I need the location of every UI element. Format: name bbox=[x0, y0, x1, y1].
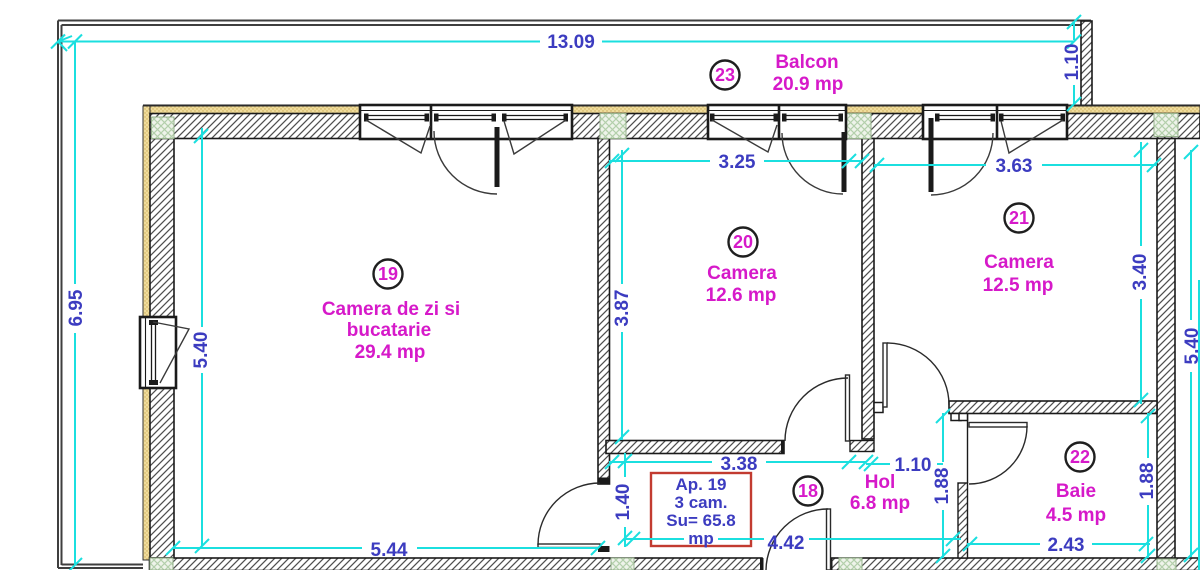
svg-text:29.4 mp: 29.4 mp bbox=[355, 342, 426, 363]
svg-text:23: 23 bbox=[715, 65, 735, 85]
svg-text:3 cam.: 3 cam. bbox=[675, 493, 728, 512]
svg-text:3.38: 3.38 bbox=[721, 454, 758, 475]
svg-text:Camera: Camera bbox=[984, 252, 1054, 273]
svg-text:20: 20 bbox=[733, 232, 753, 252]
svg-text:Hol: Hol bbox=[865, 472, 896, 493]
svg-text:12.6 mp: 12.6 mp bbox=[706, 285, 777, 306]
svg-text:13.09: 13.09 bbox=[547, 32, 595, 53]
svg-text:Ap. 19: Ap. 19 bbox=[675, 475, 726, 494]
svg-text:Baie: Baie bbox=[1056, 481, 1096, 502]
svg-text:12.5 mp: 12.5 mp bbox=[983, 275, 1054, 296]
svg-text:3.63: 3.63 bbox=[996, 156, 1033, 177]
svg-text:bucatarie: bucatarie bbox=[347, 320, 431, 341]
svg-text:22: 22 bbox=[1070, 447, 1090, 467]
svg-text:2.43: 2.43 bbox=[1048, 535, 1085, 556]
svg-text:6.95: 6.95 bbox=[66, 289, 87, 326]
svg-text:21: 21 bbox=[1009, 208, 1029, 228]
svg-text:5.40: 5.40 bbox=[1182, 328, 1200, 365]
svg-text:6.8 mp: 6.8 mp bbox=[850, 493, 910, 514]
svg-text:Balcon: Balcon bbox=[775, 52, 838, 73]
svg-text:18: 18 bbox=[798, 481, 818, 501]
svg-text:3.87: 3.87 bbox=[612, 290, 633, 327]
svg-text:1.88: 1.88 bbox=[932, 468, 953, 505]
svg-text:5.44: 5.44 bbox=[371, 540, 408, 561]
svg-text:mp: mp bbox=[688, 529, 714, 548]
svg-text:4.42: 4.42 bbox=[768, 533, 805, 554]
svg-text:1.10: 1.10 bbox=[1062, 44, 1083, 81]
svg-text:3.40: 3.40 bbox=[1130, 254, 1151, 291]
svg-text:Camera de zi si: Camera de zi si bbox=[322, 299, 460, 320]
svg-text:1.88: 1.88 bbox=[1137, 463, 1158, 500]
svg-text:4.5 mp: 4.5 mp bbox=[1046, 505, 1106, 526]
svg-text:19: 19 bbox=[378, 264, 398, 284]
svg-text:3.25: 3.25 bbox=[719, 152, 756, 173]
svg-text:20.9 mp: 20.9 mp bbox=[773, 74, 844, 95]
svg-text:5.40: 5.40 bbox=[191, 332, 212, 369]
svg-text:1.10: 1.10 bbox=[895, 455, 932, 476]
svg-text:Camera: Camera bbox=[707, 263, 777, 284]
svg-text:1.40: 1.40 bbox=[613, 484, 634, 521]
svg-text:Su= 65.8: Su= 65.8 bbox=[666, 511, 735, 530]
